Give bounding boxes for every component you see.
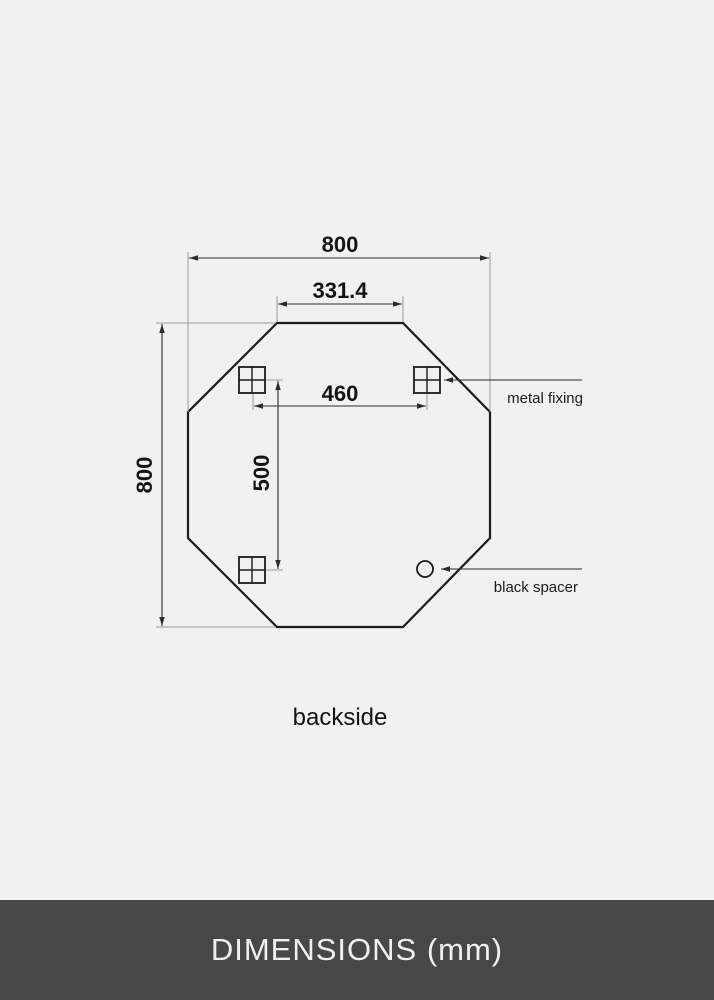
metal-fixing-top-right bbox=[414, 367, 440, 393]
black-spacer-label: black spacer bbox=[494, 579, 578, 596]
dimension-top-edge: 331.4 bbox=[278, 278, 402, 307]
view-caption: backside bbox=[293, 704, 388, 731]
footer-bar: DIMENSIONS (mm) bbox=[0, 900, 714, 1000]
dimension-height-total-value: 800 bbox=[132, 457, 157, 494]
metal-fixing-top-left bbox=[239, 367, 265, 393]
black-spacer-marker bbox=[417, 561, 433, 577]
dimension-fixing-horizontal: 460 bbox=[254, 381, 426, 409]
dimension-width-total: 800 bbox=[189, 232, 489, 261]
dimension-fixing-vertical: 500 bbox=[249, 381, 281, 569]
octagon-outline bbox=[188, 323, 490, 627]
dimension-fixing-vertical-value: 500 bbox=[249, 455, 274, 492]
metal-fixing-callout: metal fixing bbox=[444, 377, 583, 407]
metal-fixing-label: metal fixing bbox=[507, 390, 583, 407]
dimension-height-total: 800 bbox=[132, 324, 165, 626]
dimension-fixing-horizontal-value: 460 bbox=[322, 381, 359, 406]
dimension-width-total-value: 800 bbox=[322, 232, 359, 257]
metal-fixing-bottom-left bbox=[239, 557, 265, 583]
mirror-backside-drawing: 800 331.4 800 460 500 bbox=[0, 0, 714, 900]
dimension-diagram: 800 331.4 800 460 500 bbox=[0, 0, 714, 900]
black-spacer-callout: black spacer bbox=[441, 566, 582, 596]
dimension-top-edge-value: 331.4 bbox=[312, 278, 368, 303]
extension-lines bbox=[156, 252, 490, 627]
footer-title: DIMENSIONS (mm) bbox=[211, 932, 503, 968]
